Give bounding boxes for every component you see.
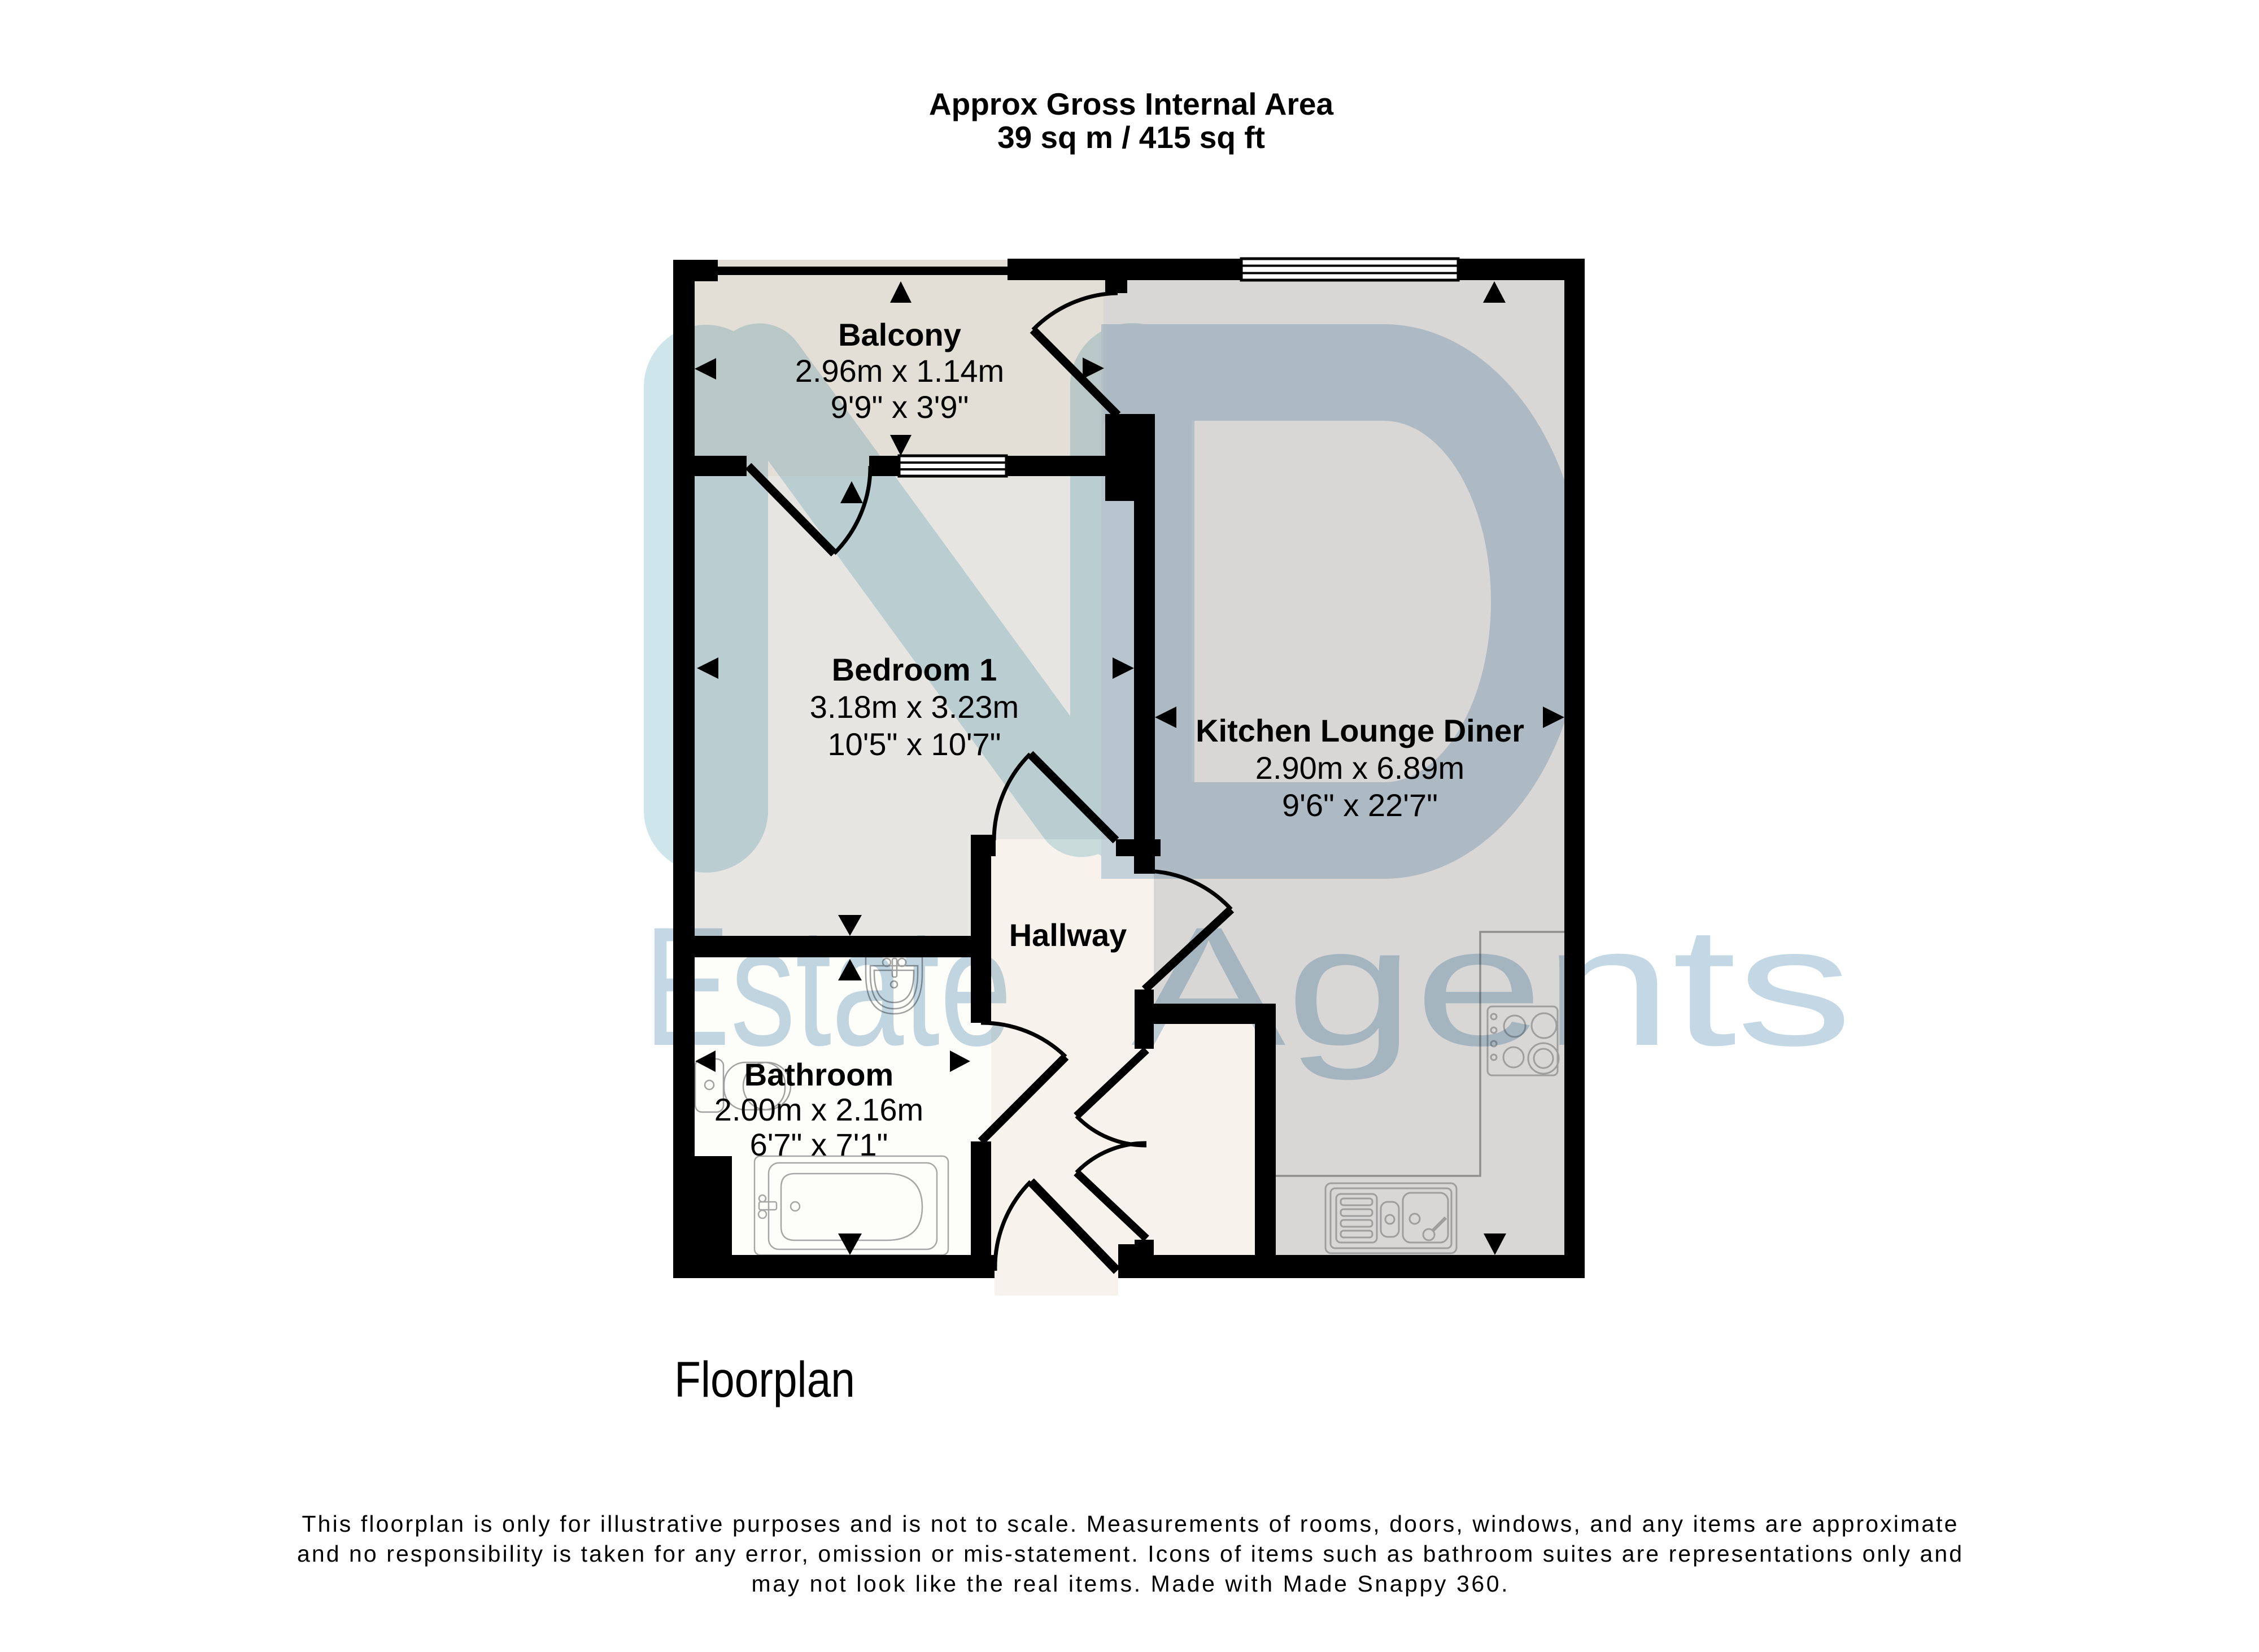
svg-text:Hallway: Hallway	[1009, 917, 1127, 953]
svg-text:Floorplan: Floorplan	[674, 1351, 855, 1407]
svg-text:Agents: Agents	[1131, 891, 1852, 1082]
svg-text:39 sq m / 415 sq ft: 39 sq m / 415 sq ft	[997, 120, 1265, 155]
svg-text:Estate: Estate	[644, 891, 1012, 1081]
svg-text:Approx Gross Internal Area: Approx Gross Internal Area	[929, 86, 1334, 121]
svg-text:Balcony: Balcony	[838, 317, 961, 352]
svg-text:and no responsibility is taken: and no responsibility is taken for any e…	[297, 1541, 1962, 1567]
svg-text:2.00m x 2.16m: 2.00m x 2.16m	[714, 1092, 923, 1127]
svg-text:6'7" x 7'1": 6'7" x 7'1"	[750, 1127, 888, 1162]
svg-text:may not look like the real ite: may not look like the real items. Made w…	[752, 1571, 1508, 1597]
